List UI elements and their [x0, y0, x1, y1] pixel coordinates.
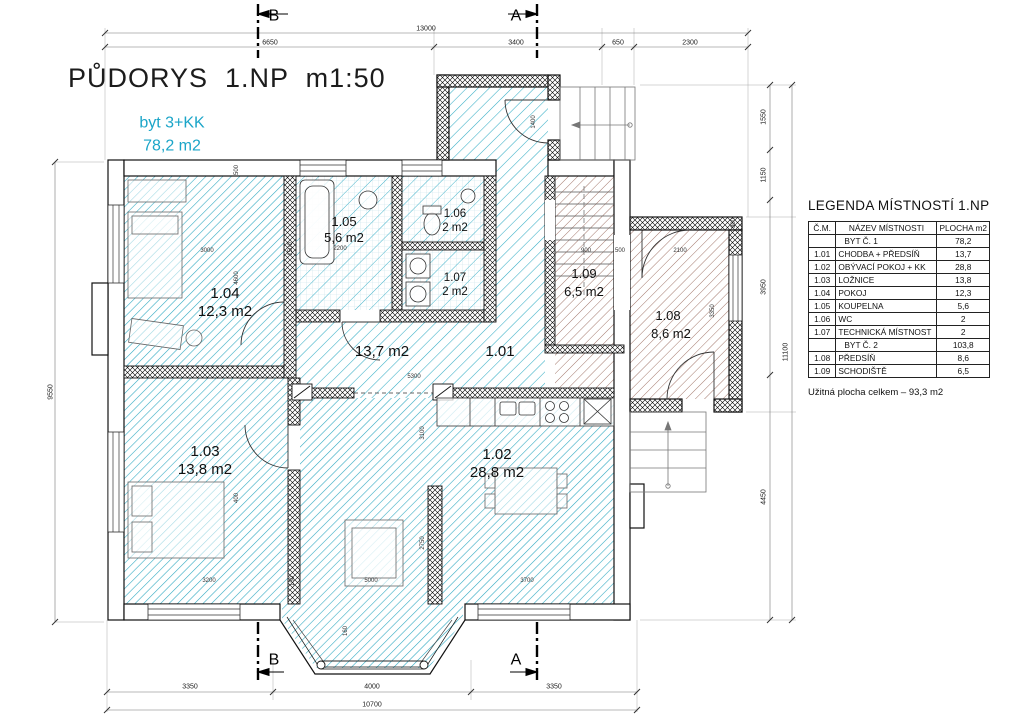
legend-cell-area: 13,8: [937, 274, 990, 287]
room-label-1-06-area: 2 m2: [442, 222, 468, 234]
legend-cell-area: 28,8: [937, 261, 990, 274]
legend-cell-cm: [809, 235, 836, 248]
legend-cell-area: 5,6: [937, 300, 990, 313]
room-label-1-05-area: 5,6 m2: [324, 231, 364, 245]
legend-row: 1.02 OBÝVACÍ POKOJ + KK 28,8: [809, 261, 990, 274]
room-label-1-07-area: 2 m2: [442, 286, 468, 298]
porch-steps: [630, 412, 706, 492]
dim-top-total: 13000: [416, 25, 435, 32]
room-label-1-01-id: 1.01: [485, 344, 514, 360]
dim-internal-3: 1500: [288, 242, 294, 255]
legend-col-name: NÁZEV MÍSTNOSTI: [836, 222, 937, 235]
section-marker-b-top: B: [269, 9, 280, 26]
dim-bottom-3: 3350: [546, 683, 562, 690]
apartment-type: byt 3+KK: [139, 116, 204, 133]
dim-internal-16: 3350: [710, 304, 716, 317]
dim-right-3: 3950: [760, 279, 767, 295]
dim-internal-12: 3100: [420, 426, 426, 439]
dim-internal-8: 150: [290, 576, 296, 586]
legend-cell-area: 8,6: [937, 352, 990, 365]
dim-right-total: 11100: [782, 343, 789, 361]
legend-cell-name: BYT Č. 2: [836, 339, 937, 352]
legend-row: 1.04 POKOJ 12,3: [809, 287, 990, 300]
legend-row: 1.03 LOŽNICE 13,8: [809, 274, 990, 287]
apartment-area: 78,2 m2: [143, 139, 201, 156]
dim-top-3: 650: [612, 39, 624, 46]
legend-cell-name: TECHNICKÁ MÍSTNOST: [836, 326, 937, 339]
legend-row: 1.01 CHODBA + PŘEDSÍŇ 13,7: [809, 248, 990, 261]
room-label-1-04-id: 1.04: [210, 286, 239, 302]
legend-cell-cm: 1.02: [809, 261, 836, 274]
dim-internal-5: 1400: [531, 115, 537, 128]
legend-cell-area: 2: [937, 313, 990, 326]
dim-internal-1: 3000: [200, 248, 213, 254]
room-legend: LEGENDA MÍSTNOSTÍ 1.NP Č.M. NÁZEV MÍSTNO…: [808, 198, 994, 398]
legend-cell-cm: 1.06: [809, 313, 836, 326]
dim-internal-4: 2200: [333, 246, 346, 252]
stove-icon: [546, 402, 555, 411]
dim-internal-17: 300: [731, 218, 737, 228]
legend-cell-cm: 1.04: [809, 287, 836, 300]
dim-bottom-2: 4000: [364, 683, 380, 690]
washbasin-icon: [359, 191, 377, 209]
room-label-1-02-area: 28,8 m2: [470, 465, 524, 481]
room-label-1-09-id: 1.09: [571, 267, 596, 281]
legend-title: LEGENDA MÍSTNOSTÍ 1.NP: [808, 198, 994, 213]
dim-top-4: 2300: [682, 39, 698, 46]
legend-cell-cm: 1.09: [809, 365, 836, 378]
legend-cell-cm: 1.03: [809, 274, 836, 287]
legend-row: 1.09 SCHODIŠTĚ 6,5: [809, 365, 990, 378]
legend-cell-name: SCHODIŠTĚ: [836, 365, 937, 378]
legend-cell-area: 13,7: [937, 248, 990, 261]
dim-internal-11: 2750: [420, 536, 426, 549]
legend-cell-name: PŘEDSÍŇ: [836, 352, 937, 365]
dim-internal-9: 5000: [364, 578, 377, 584]
room-label-1-09-area: 6,5 m2: [564, 285, 604, 299]
kitchen-counter: [437, 398, 614, 426]
dim-internal-13: 400: [234, 493, 240, 503]
page-title: PŮDORYS 1.NP m1:50: [68, 64, 386, 92]
dim-internal-10: 3700: [520, 578, 533, 584]
dim-top-1: 6650: [262, 39, 278, 46]
dim-internal-7: 3200: [202, 578, 215, 584]
dim-internal-0: 500: [234, 165, 240, 175]
entry-platform-steps: [560, 87, 635, 160]
legend-cell-name: CHODBA + PŘEDSÍŇ: [836, 248, 937, 261]
legend-row: 1.08 PŘEDSÍŇ 8,6: [809, 352, 990, 365]
room-label-1-08-id: 1.08: [655, 309, 680, 323]
dim-bottom-1: 3350: [182, 683, 198, 690]
legend-table: Č.M. NÁZEV MÍSTNOSTI PLOCHA m2 BYT Č. 1 …: [808, 221, 990, 378]
room-label-1-02-id: 1.02: [482, 447, 511, 463]
legend-cell-cm: [809, 339, 836, 352]
legend-cell-area: 103,8: [937, 339, 990, 352]
legend-row: 1.05 KOUPELNA 5,6: [809, 300, 990, 313]
legend-header-row: Č.M. NÁZEV MÍSTNOSTI PLOCHA m2: [809, 222, 990, 235]
legend-cell-name: LOŽNICE: [836, 274, 937, 287]
legend-footer: Užitná plocha celkem – 93,3 m2: [808, 387, 994, 398]
legend-cell-name: OBÝVACÍ POKOJ + KK: [836, 261, 937, 274]
dim-internal-14: 900: [581, 248, 591, 254]
legend-cell-cm: 1.07: [809, 326, 836, 339]
dim-internal-15: 2100: [673, 248, 686, 254]
dim-bottom-total: 10700: [362, 701, 381, 708]
legend-cell-name: KOUPELNA: [836, 300, 937, 313]
legend-cell-area: 2: [937, 326, 990, 339]
legend-row-byt2: BYT Č. 2 103,8: [809, 339, 990, 352]
dim-internal-2: 4600: [234, 271, 240, 284]
sink-icon: [500, 402, 516, 415]
room-label-1-03-id: 1.03: [190, 444, 219, 460]
legend-cell-cm: 1.05: [809, 300, 836, 313]
blueprint-page: PŮDORYS 1.NP m1:50 byt 3+KK 78,2 m2 B A …: [0, 0, 1024, 724]
dim-right-1: 1550: [760, 109, 767, 125]
dim-left-total: 9550: [47, 384, 54, 400]
legend-col-area: PLOCHA m2: [937, 222, 990, 235]
room-label-1-06-id: 1.06: [444, 208, 466, 220]
dim-internal-18: 160: [343, 626, 349, 636]
room-label-1-01-area: 13,7 m2: [355, 344, 409, 360]
legend-cell-cm: 1.08: [809, 352, 836, 365]
room-label-1-08-area: 8,6 m2: [651, 327, 691, 341]
section-marker-a-bottom: A: [511, 653, 522, 670]
dim-right-2: 1150: [760, 167, 767, 182]
dim-internal-6: 5300: [407, 374, 420, 380]
legend-cell-name: WC: [836, 313, 937, 326]
legend-row: 1.07 TECHNICKÁ MÍSTNOST 2: [809, 326, 990, 339]
dim-right-4: 4450: [760, 489, 767, 505]
legend-row-byt1: BYT Č. 1 78,2: [809, 235, 990, 248]
room-label-1-04-area: 12,3 m2: [198, 304, 252, 320]
section-marker-a-top: A: [511, 9, 522, 26]
legend-cell-name: POKOJ: [836, 287, 937, 300]
legend-col-cm: Č.M.: [809, 222, 836, 235]
room-label-1-03-area: 13,8 m2: [178, 462, 232, 478]
dim-internal-19: 500: [615, 248, 625, 254]
legend-cell-cm: 1.01: [809, 248, 836, 261]
legend-cell-area: 6,5: [937, 365, 990, 378]
room-label-1-05-id: 1.05: [331, 215, 356, 229]
room-label-1-07-id: 1.07: [444, 272, 466, 284]
legend-cell-area: 12,3: [937, 287, 990, 300]
dim-top-2: 3400: [508, 39, 524, 46]
section-marker-b-bottom: B: [269, 653, 280, 670]
toilet-icon: [424, 213, 440, 235]
legend-cell-area: 78,2: [937, 235, 990, 248]
legend-cell-name: BYT Č. 1: [836, 235, 937, 248]
legend-row: 1.06 WC 2: [809, 313, 990, 326]
